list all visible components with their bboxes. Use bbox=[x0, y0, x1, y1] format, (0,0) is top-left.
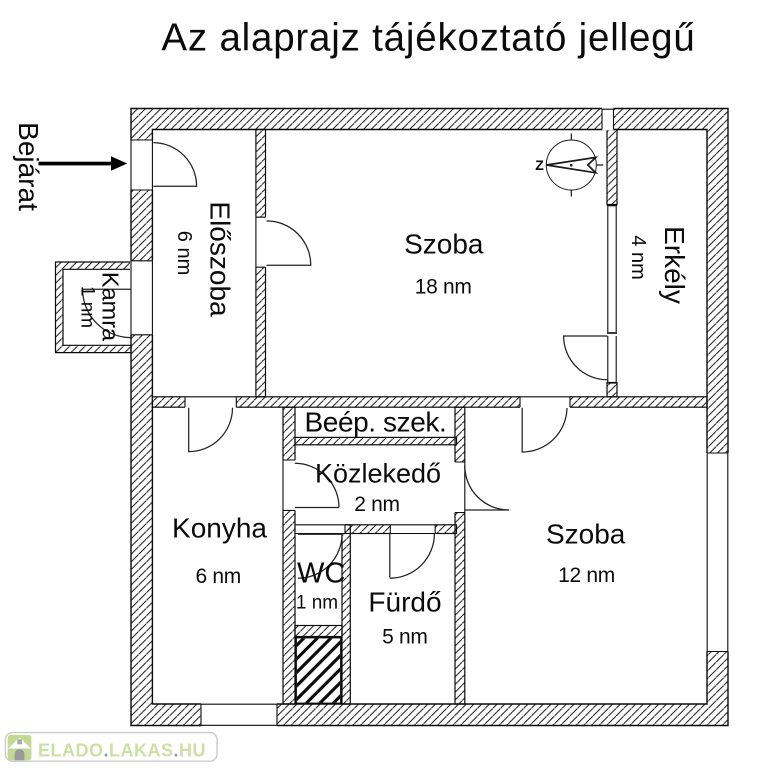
svg-text:Beép. szek.: Beép. szek. bbox=[305, 407, 447, 438]
svg-text:Szoba: Szoba bbox=[404, 229, 484, 260]
svg-text:Kamra: Kamra bbox=[97, 272, 123, 342]
svg-text:Szoba: Szoba bbox=[546, 518, 626, 549]
svg-text:18 nm: 18 nm bbox=[415, 276, 472, 299]
svg-text:2 nm: 2 nm bbox=[354, 493, 400, 516]
svg-text:Előszoba: Előszoba bbox=[205, 201, 236, 317]
svg-text:Az alaprajz tájékoztató jelleg: Az alaprajz tájékoztató jellegű bbox=[161, 17, 695, 60]
svg-text:Bejárat: Bejárat bbox=[13, 122, 44, 211]
svg-text:Erkély: Erkély bbox=[659, 226, 690, 304]
svg-text:5 nm: 5 nm bbox=[382, 625, 428, 648]
svg-text:Közlekedő: Közlekedő bbox=[315, 459, 441, 489]
svg-text:Fürdő: Fürdő bbox=[368, 587, 441, 618]
svg-text:6 nm: 6 nm bbox=[173, 231, 195, 275]
svg-text:ELADO.LAKAS.HU: ELADO.LAKAS.HU bbox=[38, 740, 206, 760]
svg-text:4 nm: 4 nm bbox=[627, 235, 649, 279]
svg-text:1 nm: 1 nm bbox=[77, 286, 98, 328]
svg-text:WC: WC bbox=[297, 558, 345, 590]
svg-text:Z: Z bbox=[535, 157, 544, 173]
svg-text:12 nm: 12 nm bbox=[558, 564, 615, 587]
svg-text:Konyha: Konyha bbox=[172, 513, 267, 544]
svg-text:1 nm: 1 nm bbox=[296, 592, 338, 613]
svg-text:6 nm: 6 nm bbox=[195, 565, 241, 588]
